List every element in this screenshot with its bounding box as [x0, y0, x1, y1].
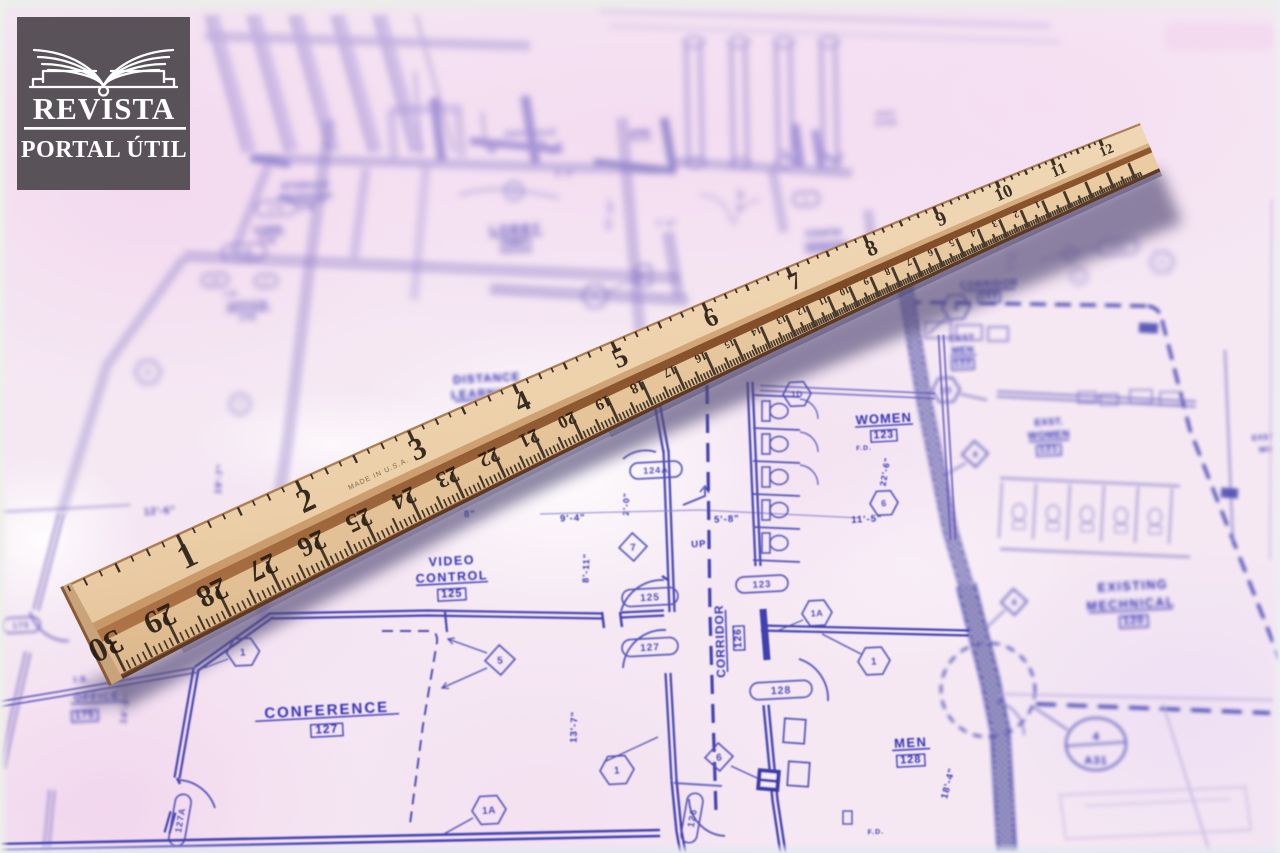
svg-text:1A: 1A [209, 275, 221, 285]
svg-text:F.D.: F.D. [868, 829, 885, 837]
svg-text:STAIR: STAIR [875, 119, 897, 127]
svg-text:4: 4 [1093, 731, 1100, 743]
svg-text:176: 176 [235, 247, 253, 258]
svg-text:6: 6 [716, 752, 723, 763]
svg-text:7'-6": 7'-6" [656, 218, 678, 228]
svg-text:175: 175 [12, 620, 30, 631]
svg-text:4: 4 [1011, 597, 1017, 607]
svg-text:1: 1 [592, 292, 597, 301]
svg-text:EXST.: EXST. [949, 332, 977, 343]
svg-text:7: 7 [238, 400, 243, 409]
svg-text:I.S.: I.S. [224, 289, 240, 299]
svg-text:7: 7 [630, 542, 637, 553]
svg-text:VIDEO: VIDEO [428, 553, 475, 569]
svg-text:EXST: EXST [876, 110, 896, 118]
svg-text:9'-6": 9'-6" [555, 168, 577, 178]
svg-text:178: 178 [297, 203, 314, 213]
svg-text:F.D.: F.D. [856, 445, 872, 453]
svg-text:123: 123 [752, 579, 771, 591]
svg-text:126: 126 [686, 808, 700, 828]
svg-text:128: 128 [770, 684, 791, 697]
svg-text:124A: 124A [643, 465, 669, 476]
svg-text:EXST.: EXST. [1034, 416, 1063, 428]
svg-text:24'-10": 24'-10" [604, 198, 616, 230]
svg-text:1A: 1A [811, 608, 824, 619]
svg-text:19'-7": 19'-7" [213, 463, 226, 494]
svg-text:4: 4 [972, 449, 978, 459]
svg-text:8'-11": 8'-11" [580, 553, 591, 583]
svg-text:1D: 1D [791, 389, 803, 400]
svg-text:1: 1 [263, 277, 269, 286]
svg-text:REVISTA: REVISTA [33, 91, 176, 126]
svg-text:A31: A31 [1084, 755, 1107, 767]
svg-text:PORTAL ÚTIL: PORTAL ÚTIL [21, 137, 187, 163]
svg-text:22'-6": 22'-6" [878, 456, 893, 486]
svg-text:127A: 127A [173, 807, 187, 834]
svg-text:6: 6 [881, 498, 887, 508]
svg-text:1: 1 [803, 195, 809, 204]
svg-text:CONFERENCE: CONFERENCE [264, 699, 390, 723]
svg-text:1: 1 [1077, 274, 1081, 281]
svg-text:126: 126 [733, 628, 745, 648]
svg-text:UP: UP [691, 539, 707, 551]
svg-text:8: 8 [145, 368, 150, 377]
svg-text:5: 5 [497, 655, 504, 666]
svg-text:127: 127 [640, 642, 660, 654]
svg-text:176: 176 [239, 312, 257, 323]
svg-text:4: 4 [1159, 258, 1164, 267]
svg-text:5'-8": 5'-8" [714, 513, 740, 525]
svg-text:EXISTING: EXISTING [1097, 577, 1168, 595]
svg-text:125: 125 [640, 592, 660, 604]
svg-text:9'-4": 9'-4" [560, 512, 586, 524]
svg-text:18'-4": 18'-4" [939, 767, 958, 801]
svg-text:1: 1 [614, 765, 621, 776]
svg-text:8: 8 [512, 187, 517, 196]
svg-text:1: 1 [240, 647, 247, 658]
svg-text:13'-7": 13'-7" [568, 711, 580, 743]
svg-text:1: 1 [871, 656, 878, 667]
svg-text:1A: 1A [482, 805, 496, 817]
svg-text:178: 178 [268, 203, 285, 213]
svg-text:248: 248 [632, 131, 647, 139]
svg-text:COATS/: COATS/ [805, 227, 842, 239]
svg-text:11'-5": 11'-5" [851, 513, 883, 526]
svg-text:CORR.: CORR. [253, 223, 286, 235]
svg-text:12'-6": 12'-6" [144, 505, 177, 518]
